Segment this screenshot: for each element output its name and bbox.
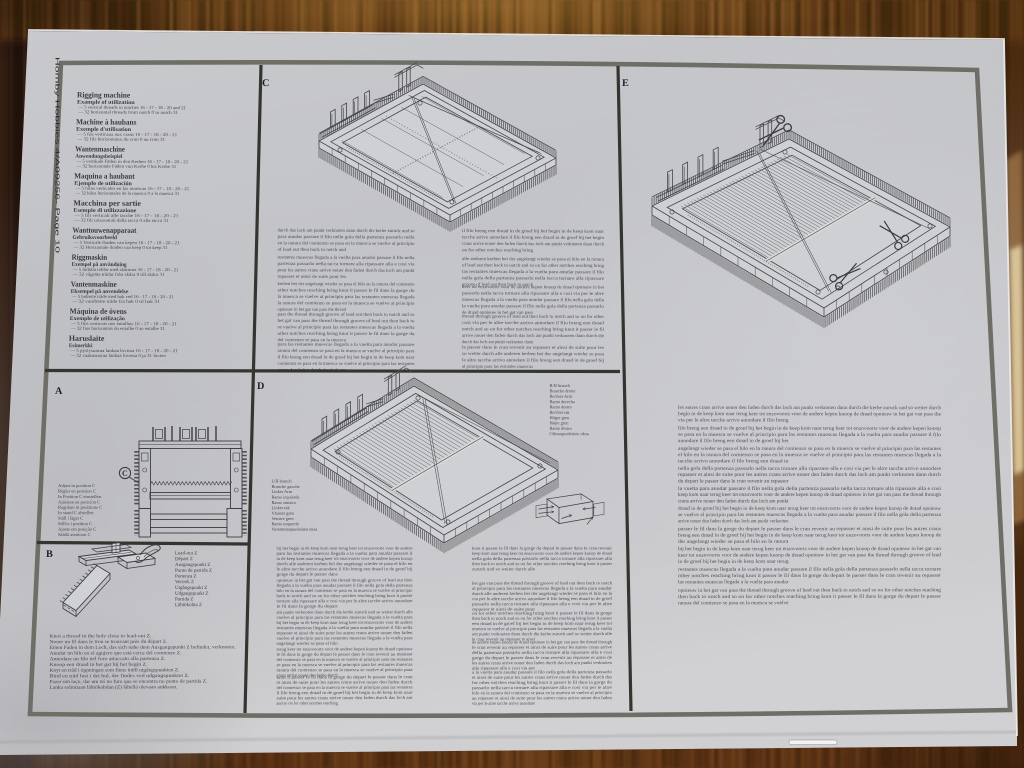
- svg-text:Linker tak: Linker tak: [271, 505, 290, 510]
- svg-text:il filo breng een draad in de: il filo breng een draad in de groef bij …: [277, 354, 415, 359]
- svg-text:repasser et ainsi de suite pou: repasser et ainsi de suite pour les autr…: [678, 473, 942, 478]
- svg-text:para las restantes muescas lle: para las restantes muescas llegada a la …: [277, 342, 414, 347]
- svg-text:se pasa en la muesca se vuelve: se pasa en la muesca se vuelve al princi…: [678, 433, 942, 438]
- svg-text:les autres crans arrive nouer: les autres crans arrive nouer den faden …: [678, 406, 942, 411]
- svg-text:— 32 horizontale Fäden von K: — 32 horizontale Fäden von Kerbe 0 bis K…: [75, 163, 176, 169]
- svg-text:— 32 fios horizontais do ent: — 32 fios horizontais do entalhe 0 ao en…: [70, 326, 165, 331]
- svg-text:of lead out then back to notch: of lead out then back to notch and: [277, 247, 346, 252]
- svg-text:el hilo en la ranura del comie: el hilo en la ranura del comienzo se pas…: [678, 453, 942, 458]
- svg-text:C: C: [262, 78, 269, 89]
- svg-text:D: D: [257, 381, 264, 392]
- svg-text:Hornby Hobbies 4/A09256- Page: Hornby Hobbies 4/A09256- Page 10: [54, 57, 60, 253]
- svg-text:en la ranura del comienzo se p: en la ranura del comienzo se pasa en la …: [277, 240, 415, 246]
- svg-text:du depart le passer dans le cr: du depart le passer dans le cran revenir…: [678, 479, 789, 484]
- svg-text:zuruck und so weiter durch all: zuruck und so weiter durch alle: [472, 566, 535, 571]
- svg-text:Vasemmanpuoleinen oksa: Vasemmanpuoleinen oksa: [271, 527, 317, 532]
- svg-text:Vantenmaskine: Vantenmaskine: [71, 280, 118, 289]
- svg-text:Knyt en tråd i öppningen som f: Knyt en tråd i öppningen som finns intil…: [49, 667, 179, 673]
- svg-text:breng een draad in de groef bi: breng een draad in de groef bij het begi…: [678, 533, 942, 538]
- svg-text:repasser et ainsi de suite pou: repasser et ainsi de suite pour les: [277, 274, 346, 279]
- svg-text:nella gola della partenza pass: nella gola della partenza passarlo nella…: [462, 275, 604, 281]
- svg-text:Højre gren: Højre gren: [549, 420, 569, 425]
- svg-text:Haruslaite: Haruslaite: [69, 334, 105, 343]
- svg-text:gorge du depart le passer dans: gorge du depart le passer dans: [276, 572, 338, 577]
- svg-text:nella gola della partenza pass: nella gola della partenza passarlo nella…: [678, 467, 942, 472]
- svg-text:keer tot enzovoorts voor de an: keer tot enzovoorts voor de andere kepen…: [462, 284, 605, 290]
- svg-text:so weiter durch alle anderen k: so weiter durch alle anderen kerben bei …: [462, 351, 604, 356]
- svg-text:restantes muescas llegada a la: restantes muescas llegada a la vuelta pa…: [678, 567, 942, 572]
- svg-text:le altre tacche arrivo annodar: le altre tacche arrivo annodare il filo …: [462, 357, 604, 362]
- svg-text:keep kom naar terug keer tot e: keep kom naar terug keer tot enzovoorts …: [678, 493, 942, 498]
- svg-text:Linker Arm: Linker Arm: [272, 489, 293, 494]
- svg-text:E: E: [622, 78, 629, 89]
- svg-text:la muesca se vuelve al princip: la muesca se vuelve al principio para la…: [277, 294, 414, 299]
- svg-text:Venstre gren: Venstre gren: [271, 516, 294, 521]
- svg-text:ranura del comienzo se pasa en: ranura del comienzo se pasa en la muesca…: [277, 348, 414, 353]
- svg-text:muescas llegada a la vuelta pa: muescas llegada a la vuelta para anudar …: [462, 297, 604, 302]
- svg-text:se vuelve al principio para la: se vuelve al principio para las restante…: [678, 513, 942, 518]
- svg-text:Partenza Z: Partenza Z: [175, 574, 197, 579]
- svg-text:Ramo esquerdo: Ramo esquerdo: [271, 521, 299, 526]
- svg-text:on for other notches reaching: on for other notches reaching bring: [462, 247, 534, 252]
- svg-text:L/H branch: L/H branch: [271, 479, 292, 484]
- svg-text:other notches reaching bring k: other notches reaching bring knot it pas…: [277, 287, 415, 292]
- svg-text:las restantes muescas llegada: las restantes muescas llegada a la vuelt…: [462, 269, 605, 275]
- svg-text:via per le altre tacche arrivo: via per le altre tacche arrivo annodare: [472, 701, 535, 706]
- svg-text:durch das loch am punkt verkno: durch das loch am punkt verknoten dann: [462, 339, 534, 344]
- svg-text:via per le altre tacche arrivo: via per le altre tacche arrivo annodare …: [678, 418, 789, 423]
- svg-text:keer tot enzovoorts voor de an: keer tot enzovoorts voor de andere kepen…: [678, 553, 942, 558]
- svg-text:annodare il filo breng een dra: annodare il filo breng een draad in de g…: [678, 439, 789, 444]
- svg-text:Ajuste em posição C: Ajuste em posição C: [58, 527, 96, 532]
- svg-text:le passer dans le cran revenir: le passer dans le cran revenir au repass…: [462, 345, 604, 350]
- svg-text:— 32 Horizontale draden van: — 32 Horizontale draden van keep 0 tot k…: [72, 245, 167, 250]
- svg-text:Oikeanpuoleinen oksa: Oikeanpuoleinen oksa: [549, 431, 588, 436]
- svg-text:arrive nouer den faden durch d: arrive nouer den faden durch das loch am…: [462, 333, 604, 338]
- svg-text:Adjust in position C: Adjust in position C: [58, 483, 95, 488]
- svg-text:of lead out then back to notch: of lead out then back to notch and so on…: [462, 262, 605, 268]
- svg-text:Einen Faden in dem Loch, das s: Einen Faden in dem Loch, das sich nahe d…: [49, 645, 235, 651]
- svg-text:Udgangspunkt Z: Udgangspunkt Z: [175, 592, 208, 597]
- svg-text:— 32 hilos horizontales de l: — 32 hilos horizontales de la muesca 0 a…: [74, 190, 179, 196]
- svg-text:Ramo destro: Ramo destro: [549, 426, 572, 431]
- svg-text:Säädä asentoon C: Säädä asentoon C: [58, 532, 91, 537]
- svg-text:restantes muescas llegada a la: restantes muescas llegada a la vuelta pa…: [277, 255, 414, 261]
- svg-text:Rechter tak: Rechter tak: [549, 410, 570, 415]
- svg-text:las restantes muescas llegada: las restantes muescas llegada a la vuelt…: [678, 580, 789, 585]
- svg-text:begin in de keep kom naar teru: begin in de keep kom naar terug keer tot…: [678, 412, 942, 417]
- svg-text:crans arrive nouer den faden d: crans arrive nouer den faden durch das l…: [462, 241, 605, 247]
- svg-text:passer le fil dans la gorge du: passer le fil dans la gorge du depart le…: [678, 527, 941, 532]
- svg-text:comienzo se pasa en la muesca: comienzo se pasa en la muesca se vuelve …: [277, 361, 414, 366]
- svg-text:Rigging machine: Rigging machine: [77, 90, 131, 99]
- svg-text:passarlo nella tacca tornare a: passarlo nella tacca tornare alla ripass…: [462, 290, 604, 295]
- svg-text:Ramo derecha: Ramo derecha: [549, 399, 574, 404]
- svg-text:Lead-out Z: Lead-out Z: [175, 551, 197, 556]
- svg-text:la vuelta para anudar passare: la vuelta para anudar passare il filo ne…: [678, 487, 942, 492]
- svg-text:Branche gauche: Branche gauche: [272, 484, 300, 489]
- svg-text:— 32 vandrette tråde fra hak: — 32 vandrette tråde fra hak 0 til hak 3…: [70, 299, 159, 304]
- svg-text:Partida Z: Partida Z: [175, 597, 193, 602]
- svg-text:Régler en position C: Régler en position C: [58, 488, 96, 493]
- svg-text:Wantenmaschine: Wantenmaschine: [75, 144, 125, 153]
- svg-text:Annodare un filo nel foro atta: Annodare un filo nel foro attaccato alla…: [49, 657, 165, 662]
- svg-text:— 32 horizontal threads from: — 32 horizontal threads from notch 0 to …: [77, 109, 178, 115]
- svg-text:partenza passarlo nella tacca: partenza passarlo nella tacca tornare al…: [277, 261, 414, 267]
- svg-text:Regolare in posizione C: Regolare in posizione C: [58, 505, 102, 510]
- svg-text:arrive nouer den faden durch d: arrive nouer den faden durch das loch am…: [678, 519, 789, 524]
- svg-text:Ställ i läget C: Ställ i läget C: [58, 516, 83, 521]
- svg-text:other notches reaching bring k: other notches reaching bring knot it pas…: [277, 331, 415, 336]
- svg-text:and so on for other notches re: and so on for other notches reaching: [276, 700, 338, 705]
- svg-text:B: B: [46, 549, 53, 560]
- svg-text:cosi via per le altre tacche a: cosi via per le altre tacche arrivo anno…: [462, 320, 605, 325]
- svg-text:la ranura del comienzo se pasa: la ranura del comienzo se pasa en la mue…: [277, 300, 415, 305]
- svg-text:R/H branch: R/H branch: [549, 383, 570, 388]
- svg-text:para anudar passare il filo ne: para anudar passare il filo nella gola d…: [277, 234, 414, 240]
- svg-text:filo breng een draad in de gro: filo breng een draad in de groef bij het…: [678, 427, 942, 432]
- svg-text:bij het begin in de keep kom n: bij het begin in de keep kom naar terug …: [678, 547, 942, 552]
- svg-text:A: A: [55, 386, 63, 397]
- svg-text:Ramo sinistro: Ramo sinistro: [271, 500, 296, 505]
- svg-text:Ausgangspunkt Z: Ausgangspunkt Z: [175, 563, 210, 568]
- svg-text:al principio para las restante: al principio para las restantes muescas: [462, 364, 533, 369]
- svg-text:Knot a thread in the hole clos: Knot a thread in the hole close to lead-…: [49, 634, 151, 639]
- svg-text:Knoop een draad in het gat bij: Knoop een draad in het gat bij het begin…: [49, 663, 147, 668]
- svg-text:pour les autres crans arrive n: pour les autres crans arrive nouer den f…: [277, 267, 415, 273]
- svg-text:kerben bei der angelangt wiede: kerben bei der angelangt wieder se pasa …: [277, 281, 415, 287]
- svg-text:Vertrek Z: Vertrek Z: [175, 580, 194, 585]
- svg-text:Ramo izquierda: Ramo izquierda: [271, 495, 299, 500]
- svg-text:Nouer un fil dans le trou se t: Nouer un fil dans le trou se trouvant pr…: [49, 640, 167, 645]
- svg-text:then back to notch and so on f: then back to notch and so on for other n…: [678, 595, 941, 601]
- svg-text:— 32 vaakasuoraa lankaa love: — 32 vaakasuoraa lankaa lovesta 0 ja 31 …: [69, 353, 167, 358]
- svg-text:le fil dans la gorge du depart: le fil dans la gorge du depart: [276, 603, 338, 608]
- svg-text:— 32 vågräta trådar från skå: — 32 vågräta trådar från skåra 0 till sk…: [71, 272, 164, 277]
- svg-text:draad in de groef bij het begi: draad in de groef bij het begin in de ke…: [678, 507, 941, 512]
- svg-text:Ramo destro: Ramo destro: [549, 404, 572, 409]
- svg-text:Riggmaskin: Riggmaskin: [72, 253, 108, 262]
- svg-text:crans arrive nouer den faden d: crans arrive nouer den faden durch das l…: [678, 499, 789, 504]
- svg-text:tacche arrivo annodare il filo: tacche arrivo annodare il filo breng een…: [678, 459, 789, 464]
- svg-text:Bind en tråd fast i det hul, d: Bind en tråd fast i det hul, der findes …: [49, 673, 189, 679]
- svg-text:il filo breng een draad in de: il filo breng een draad in de groef bij …: [462, 228, 605, 234]
- svg-text:Utgångspunkt Z: Utgångspunkt Z: [175, 585, 207, 591]
- svg-text:— 32 fili orizzontali dalla: — 32 fili orizzontali dalla tacca 0 alla…: [73, 217, 168, 222]
- svg-text:Rechter Arm: Rechter Arm: [549, 394, 572, 399]
- svg-text:Fazer um laço, dar um nó no fu: Fazer um laço, dar um nó no furo que se …: [49, 680, 207, 686]
- svg-text:notch and so on for other notc: notch and so on for other notches reachi…: [462, 326, 605, 331]
- svg-text:nouer den faden durch das loch: nouer den faden durch das loch am: [277, 367, 346, 372]
- svg-text:— 32 fils horizontaux du cra: — 32 fils horizontaux du cran 0 au cran …: [76, 136, 165, 142]
- svg-text:Wanttouwenapparaat: Wanttouwenapparaat: [72, 226, 136, 235]
- svg-text:se vuelve al principio para la: se vuelve al principio para las restante…: [277, 324, 414, 329]
- svg-text:In stand C afstellen: In stand C afstellen: [58, 510, 94, 515]
- svg-text:Macchina per sartie: Macchina per sartie: [73, 199, 141, 208]
- svg-text:pass the thread through groove: pass the thread through groove of lead o…: [277, 312, 415, 317]
- svg-text:opnieuw in het gat van pass th: opnieuw in het gat van pass the thread t…: [678, 588, 942, 594]
- svg-text:Máquina de óvens: Máquina de óvens: [70, 307, 127, 316]
- svg-text:Branche droite: Branche droite: [549, 388, 575, 393]
- svg-text:der angelangt wieder se pasa e: der angelangt wieder se pasa el hilo en …: [678, 540, 789, 545]
- svg-text:thread through groove of lead: thread through groove of lead out then b…: [462, 314, 605, 319]
- svg-text:het gat van pass the thread th: het gat van pass the thread through groo…: [277, 318, 415, 323]
- svg-text:Anudar un hilo en el agujero q: Anudar un hilo en el agujero que está ce…: [49, 651, 181, 656]
- svg-text:Vänster gren: Vänster gren: [271, 511, 294, 516]
- svg-text:Départ Z: Départ Z: [175, 557, 193, 562]
- svg-text:alle anderen kerben bei der an: alle anderen kerben bei der angelangt wi…: [462, 256, 604, 262]
- svg-text:angelangt wieder se pasa el hi: angelangt wieder se pasa el hilo en la r…: [678, 447, 941, 452]
- svg-text:durch das loch am punkt verkno: durch das loch am punkt verknoten dann d…: [277, 228, 415, 234]
- svg-text:Machine à haubans: Machine à haubans: [76, 117, 136, 126]
- svg-text:Ajústese en posición C: Ajústese en posición C: [58, 499, 100, 504]
- svg-text:In Position C einstellen: In Position C einstellen: [58, 494, 102, 499]
- svg-text:other notches reaching bring k: other notches reaching bring knot it pas…: [678, 574, 941, 579]
- svg-text:in de groef bij het begin in d: in de groef bij het begin in de keep kom…: [678, 560, 789, 565]
- svg-text:C: C: [122, 469, 128, 478]
- svg-text:Lanka solmitaan lähtökohdan (Z: Lanka solmitaan lähtökohdan (Z) lähellä …: [49, 685, 177, 690]
- svg-text:Maquina a haubant: Maquina a haubant: [74, 171, 135, 180]
- svg-text:la vuelta para anudar passare: la vuelta para anudar passare il filo ne…: [462, 303, 605, 308]
- svg-text:Höger gren: Höger gren: [549, 415, 570, 420]
- svg-text:ranura del comienzo se pasa en: ranura del comienzo se pasa en la muesca…: [678, 601, 789, 606]
- svg-text:Punto de partida Z: Punto de partida Z: [175, 569, 212, 574]
- svg-text:Lähtökohta Z: Lähtökohta Z: [175, 603, 202, 608]
- svg-text:angelangt wieder se pasa el hi: angelangt wieder se pasa el hilo: [276, 641, 338, 646]
- svg-text:tacche arrivo annodare il filo: tacche arrivo annodare il filo breng een…: [462, 234, 605, 240]
- svg-text:Stilles i position C: Stilles i position C: [58, 521, 92, 526]
